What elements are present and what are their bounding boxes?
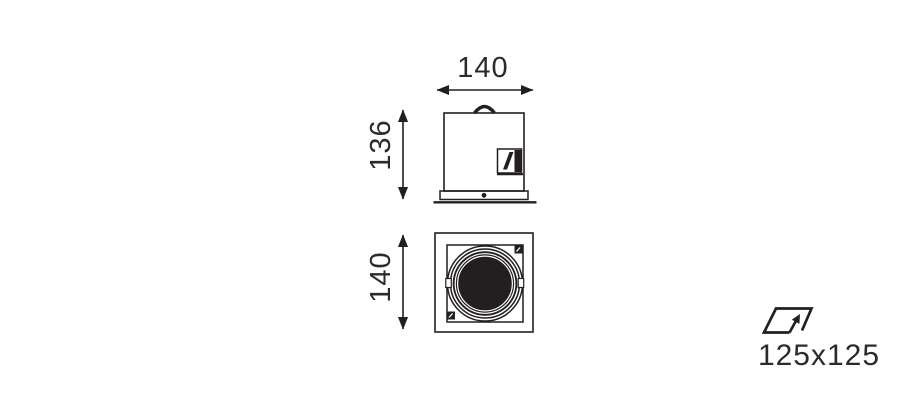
cutout-arrow-shaft bbox=[790, 320, 797, 333]
reflector-disc bbox=[453, 251, 518, 316]
side-view-connector bbox=[497, 149, 523, 174]
flange-screw bbox=[482, 193, 487, 198]
connector-bar bbox=[515, 150, 522, 172]
side-view-handle bbox=[475, 107, 495, 114]
front-view bbox=[435, 233, 533, 332]
left-clip-tab bbox=[446, 279, 452, 288]
side-view bbox=[434, 107, 537, 203]
ceiling-cutout-icon bbox=[764, 309, 812, 333]
connector-lever bbox=[503, 152, 514, 170]
luminaire-spec-drawing: 140 136 140 125x125 bbox=[0, 0, 900, 400]
cutout-outline bbox=[764, 309, 812, 333]
right-clip-tab bbox=[518, 279, 524, 288]
drawing-linework bbox=[0, 0, 900, 400]
